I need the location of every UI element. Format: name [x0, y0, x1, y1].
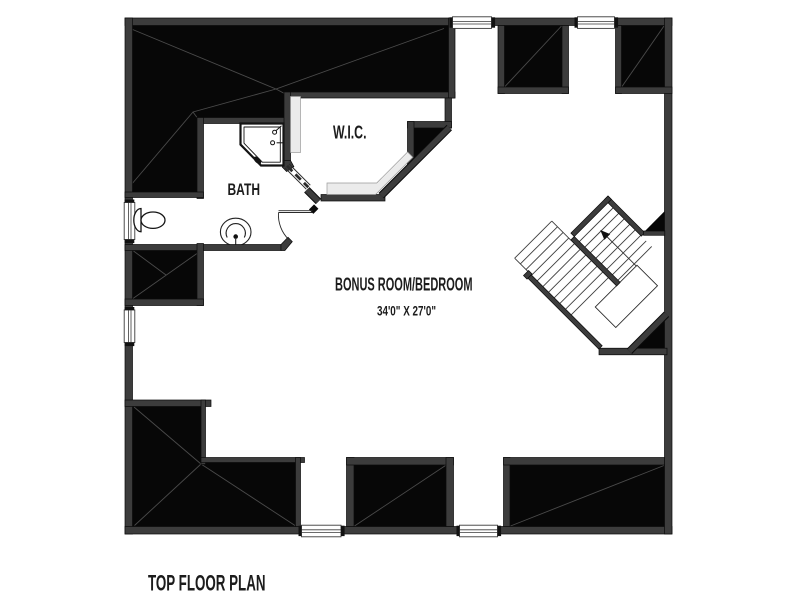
svg-text:BATH: BATH	[228, 180, 261, 199]
svg-text:34'0" X 27'0": 34'0" X 27'0"	[377, 303, 436, 318]
svg-text:W.I.C.: W.I.C.	[333, 121, 367, 142]
svg-text:TOP FLOOR PLAN: TOP FLOOR PLAN	[148, 570, 266, 595]
svg-text:BONUS ROOM/BEDROOM: BONUS ROOM/BEDROOM	[335, 274, 473, 295]
